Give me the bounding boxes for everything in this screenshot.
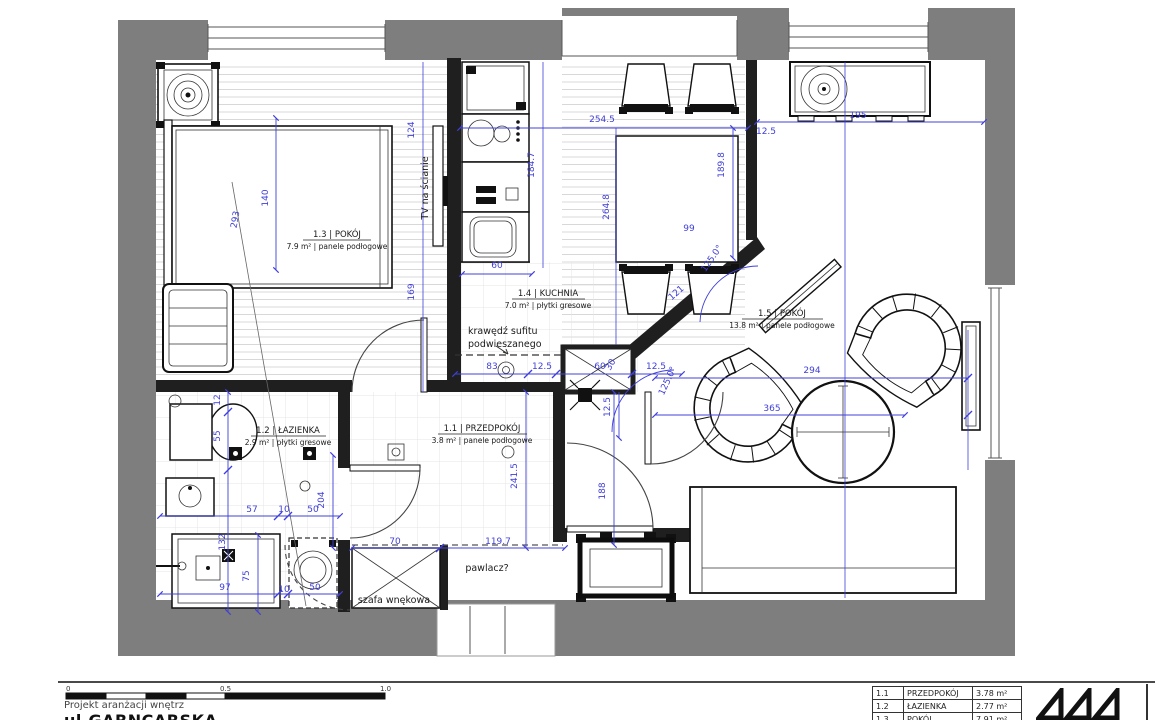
svg-text:195: 195 (849, 111, 866, 121)
svg-text:1.5 | POKÓJ: 1.5 | POKÓJ (758, 307, 806, 319)
scale-tick-05: 0.5 (220, 685, 231, 693)
svg-text:12.5: 12.5 (603, 397, 613, 417)
window-living-top (789, 22, 928, 52)
svg-text:13.8 m² | panele podłogowe: 13.8 m² | panele podłogowe (729, 321, 835, 330)
svg-text:204: 204 (317, 491, 327, 508)
svg-text:2.9 m² | płytki gresowe: 2.9 m² | płytki gresowe (245, 438, 332, 447)
room-id: 1.3 (873, 713, 904, 720)
ceiling-label-line2: podwieszanego (468, 339, 542, 350)
svg-text:1.1 | PRZEDPOKÓJ: 1.1 | PRZEDPOKÓJ (444, 422, 521, 434)
dining-chair (685, 64, 739, 114)
szafa-label: szafa wnękowa (358, 595, 430, 606)
project-type-label: Projekt aranżacji wnętrz (64, 700, 217, 711)
table-row: 1.1 PRZEDPOKÓJ 3.78 m² (873, 687, 1022, 700)
table-row: 1.2 ŁAZIENKA 2.77 m² (873, 700, 1022, 713)
window-bedroom (208, 24, 385, 52)
svg-text:241.5: 241.5 (510, 463, 520, 489)
storage-trunk (576, 532, 676, 602)
svg-text:57: 57 (246, 505, 257, 515)
tv-wall-label: TV na ścianie (420, 156, 431, 220)
svg-text:7.0 m² | płytki gresowe: 7.0 m² | płytki gresowe (505, 301, 592, 310)
svg-text:60: 60 (491, 261, 503, 271)
svg-text:264.8: 264.8 (602, 194, 612, 220)
bedroom-armchair (156, 62, 220, 128)
svg-text:1.3 | POKÓJ: 1.3 | POKÓJ (313, 228, 361, 240)
room-id: 1.1 (873, 687, 904, 700)
bed (164, 120, 392, 292)
floor-plan-canvas: 124 184.7 254.5 189.8 264.8 99 12.5 195 … (0, 0, 1155, 682)
svg-text:50: 50 (309, 583, 321, 593)
scale-tick-10: 1.0 (380, 685, 391, 693)
bedroom-bench (163, 284, 233, 372)
room-area: 2.77 m² (973, 700, 1022, 713)
svg-text:188: 188 (598, 482, 608, 499)
svg-text:132: 132 (218, 533, 228, 550)
svg-text:119.7: 119.7 (485, 537, 511, 547)
svg-text:124: 124 (407, 121, 417, 138)
svg-text:140: 140 (261, 189, 271, 206)
ceiling-label-line1: krawędź sufitu (468, 326, 538, 337)
logo-zigzag (1036, 688, 1132, 720)
svg-text:70: 70 (389, 537, 401, 547)
svg-text:12.5: 12.5 (646, 362, 666, 372)
footer-divider (58, 681, 1155, 683)
room-area: 3.78 m² (973, 687, 1022, 700)
tv-living-wall (962, 322, 980, 430)
table-row: 1.3 POKÓJ 7.91 m² (873, 713, 1022, 720)
project-street-label: ul.GARNCARSKA (64, 711, 217, 720)
sofa (690, 487, 956, 593)
svg-text:169: 169 (407, 283, 417, 300)
svg-text:10: 10 (278, 505, 290, 515)
area-summary-table: 1.1 PRZEDPOKÓJ 3.78 m² 1.2 ŁAZIENKA 2.77… (872, 686, 1022, 720)
svg-text:294: 294 (803, 366, 820, 376)
pawlacz-label: pawlacz? (465, 563, 508, 574)
door-entry (567, 443, 653, 532)
svg-text:365: 365 (763, 404, 780, 414)
washbasin (166, 478, 214, 516)
window-dining (562, 20, 737, 56)
svg-text:184.7: 184.7 (527, 152, 537, 178)
title-block: 0 0.5 1.0 Projekt aranżacji wnętrz ul.GA… (0, 682, 1155, 720)
window-living-right (988, 288, 1002, 458)
svg-text:12.5: 12.5 (756, 127, 776, 137)
svg-text:55: 55 (213, 430, 223, 441)
room-id: 1.2 (873, 700, 904, 713)
svg-text:83: 83 (486, 362, 497, 372)
room-area: 7.91 m² (973, 713, 1022, 720)
scale-tick-0: 0 (66, 685, 70, 693)
svg-text:10: 10 (278, 585, 290, 595)
svg-text:1.2 | ŁAZIENKA: 1.2 | ŁAZIENKA (256, 426, 320, 436)
dining-chair (619, 64, 673, 114)
svg-text:99: 99 (683, 224, 695, 234)
svg-text:12: 12 (213, 394, 223, 405)
svg-text:189.8: 189.8 (717, 152, 727, 178)
footer-right-border (1146, 684, 1148, 720)
svg-text:1.4 | KUCHNIA: 1.4 | KUCHNIA (518, 289, 579, 299)
room-name: POKÓJ (904, 713, 973, 720)
svg-text:12.5: 12.5 (532, 362, 552, 372)
room-name: ŁAZIENKA (904, 700, 973, 713)
entry-vestibule (437, 604, 555, 656)
svg-text:3.8 m² | panele podłogowe: 3.8 m² | panele podłogowe (432, 436, 533, 445)
svg-text:75: 75 (242, 570, 252, 581)
round-table (792, 381, 894, 483)
room-label-1-5: 1.5 | POKÓJ 13.8 m² | panele podłogowe (729, 307, 835, 330)
svg-text:7.9 m² | panele podłogowe: 7.9 m² | panele podłogowe (287, 242, 388, 251)
room-label-1-1: 1.1 | PRZEDPOKÓJ 3.8 m² | panele podłogo… (432, 422, 533, 445)
svg-text:97: 97 (219, 583, 230, 593)
kitchen-units (462, 62, 529, 262)
svg-text:254.5: 254.5 (589, 115, 615, 125)
floor-plan-page: 124 184.7 254.5 189.8 264.8 99 12.5 195 … (0, 0, 1155, 720)
project-title-block: Projekt aranżacji wnętrz ul.GARNCARSKA (64, 700, 217, 720)
dining-chair (619, 264, 673, 314)
room-name: PRZEDPOKÓJ (904, 687, 973, 700)
